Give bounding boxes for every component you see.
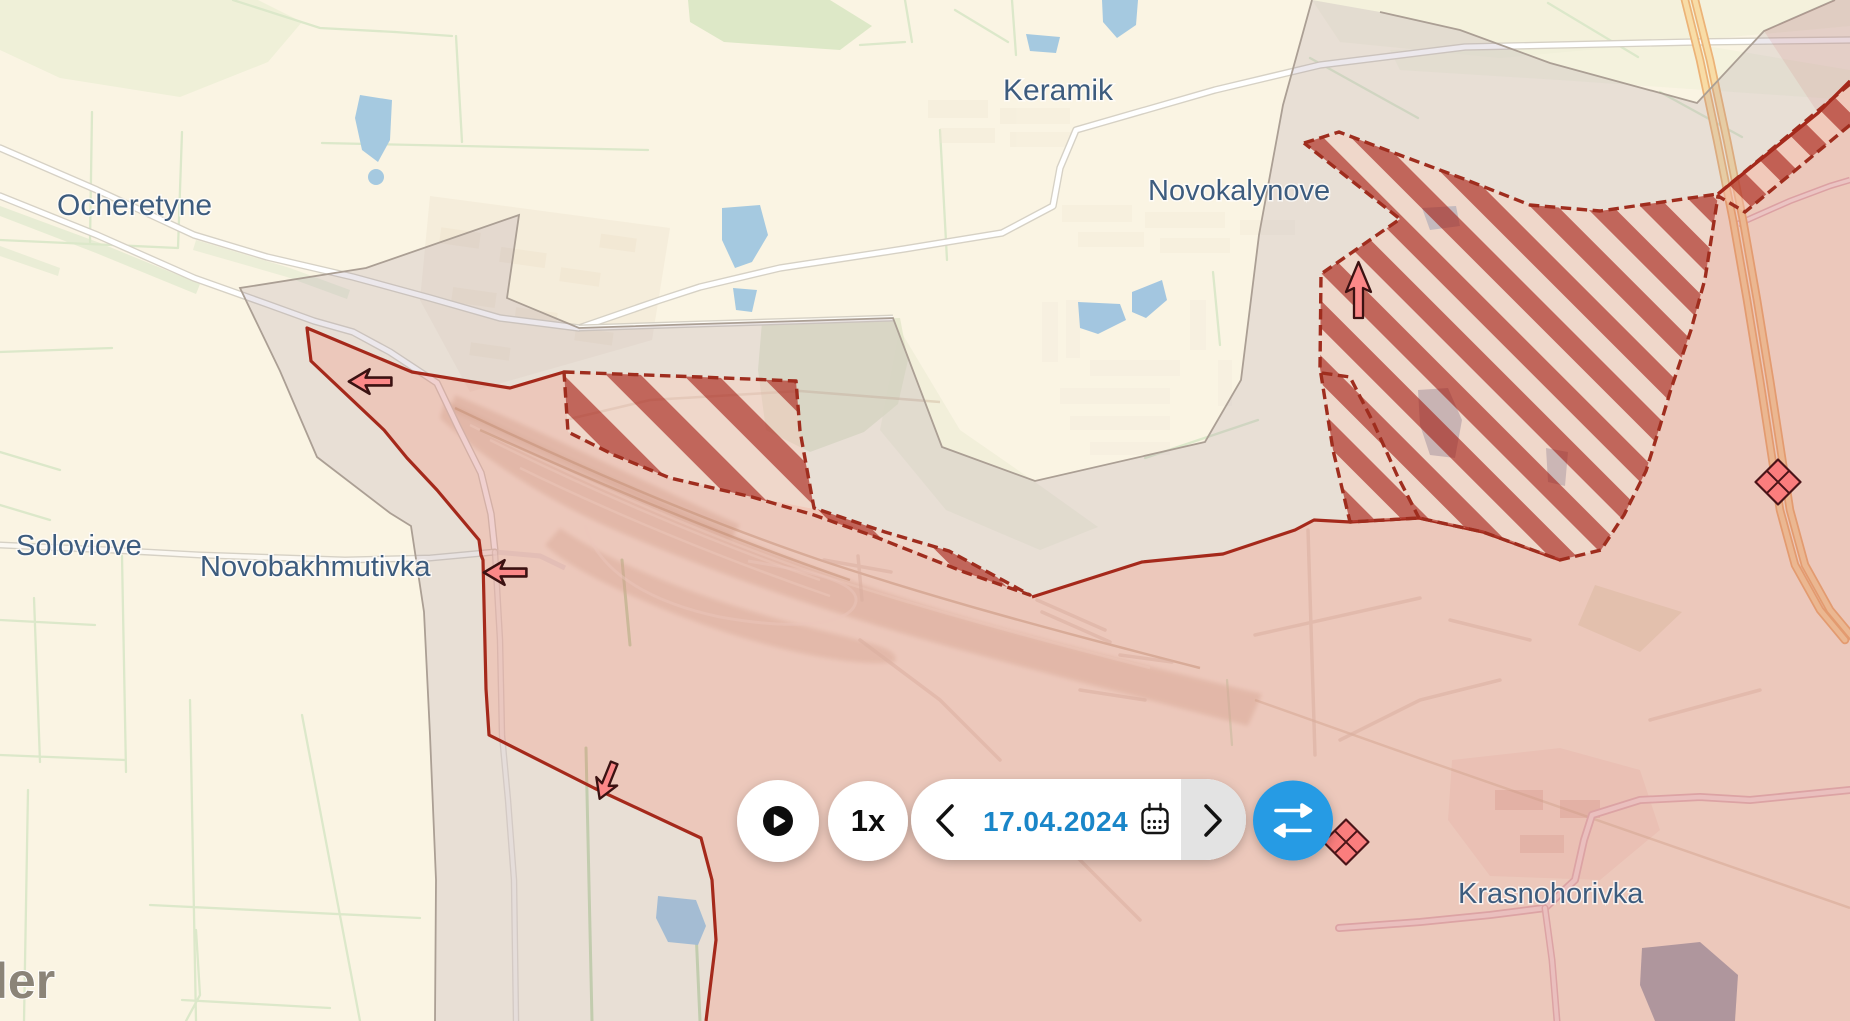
svg-text:17.04.2024: 17.04.2024 (983, 806, 1128, 837)
svg-text:Ocheretyne: Ocheretyne (57, 189, 212, 222)
svg-text:ler: ler (0, 953, 55, 1009)
svg-text:Keramik: Keramik (1003, 74, 1114, 107)
svg-text:1x: 1x (851, 803, 886, 838)
svg-text:Soloviove: Soloviove (16, 530, 142, 562)
svg-text:Novokalynove: Novokalynove (1148, 175, 1330, 207)
svg-text:Novobakhmutivka: Novobakhmutivka (200, 551, 431, 583)
svg-text:Krasnohorivka: Krasnohorivka (1458, 878, 1644, 910)
